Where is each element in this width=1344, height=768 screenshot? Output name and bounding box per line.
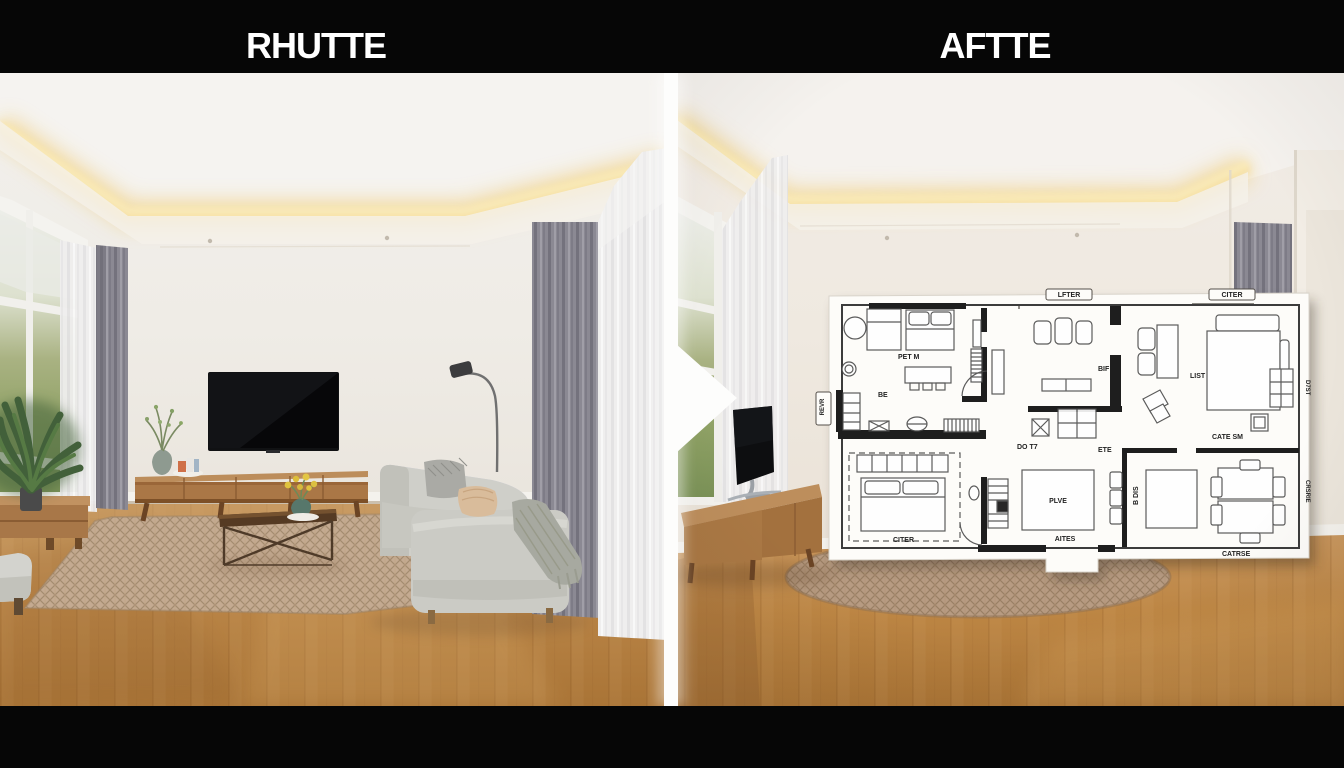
svg-text:AFTTE: AFTTE bbox=[940, 25, 1051, 66]
svg-text:RHUTTE: RHUTTE bbox=[246, 25, 386, 66]
